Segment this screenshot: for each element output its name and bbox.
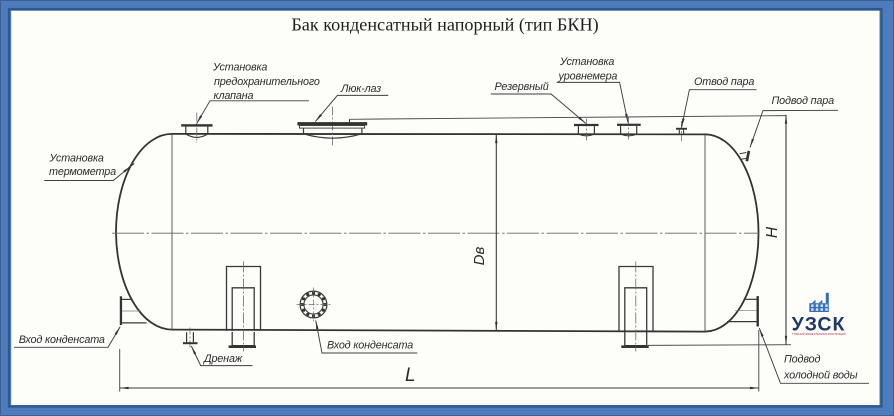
svg-text:Установка: Установка [49, 153, 104, 165]
svg-text:Резервный: Резервный [495, 81, 549, 93]
svg-text:H: H [764, 226, 781, 238]
svg-text:ТУЛЬСКИЙ ЗАВОД СТАЛЬНЫХ КОНСТР: ТУЛЬСКИЙ ЗАВОД СТАЛЬНЫХ КОНСТРУКЦИЙ [792, 332, 846, 336]
svg-text:Установка: Установка [212, 62, 267, 74]
svg-text:Дренаж: Дренаж [203, 353, 243, 365]
svg-text:Подвод пара: Подвод пара [772, 95, 835, 107]
svg-text:Вход конденсата: Вход конденсата [19, 334, 105, 346]
svg-text:клапана: клапана [214, 90, 254, 102]
svg-text:Люк-лаз: Люк-лаз [340, 83, 381, 95]
svg-text:Подвод: Подвод [784, 354, 820, 366]
svg-text:L: L [405, 365, 416, 386]
svg-text:Вход конденсата: Вход конденсата [327, 340, 413, 352]
svg-text:Бак конденсатный напорный (тип: Бак конденсатный напорный (тип БКН) [291, 15, 598, 36]
svg-text:уровнемера: уровнемера [558, 71, 618, 83]
svg-text:Отвод пара: Отвод пара [694, 76, 754, 88]
svg-text:термометра: термометра [49, 166, 116, 178]
svg-text:предохранительного: предохранительного [214, 76, 320, 88]
svg-text:холодной воды: холодной воды [783, 370, 858, 382]
svg-text:Dв: Dв [471, 247, 488, 266]
svg-text:Установка: Установка [559, 56, 614, 68]
